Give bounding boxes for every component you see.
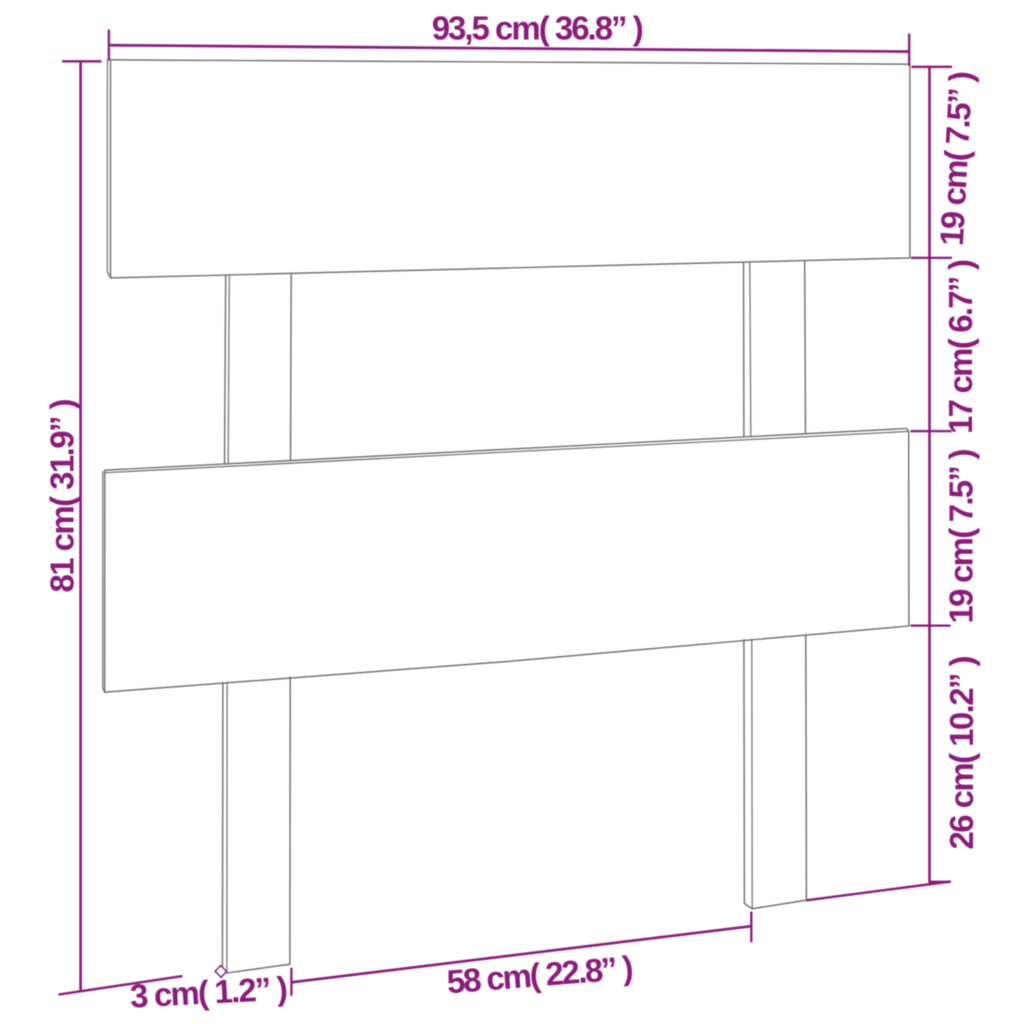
svg-text:26 cm( 10.2” ): 26 cm( 10.2” ) — [943, 656, 980, 850]
svg-text:19 cm( 7.5” ): 19 cm( 7.5” ) — [943, 449, 980, 624]
svg-text:17 cm( 6.7” ): 17 cm( 6.7” ) — [942, 259, 979, 434]
svg-text:81 cm( 31.9” ): 81 cm( 31.9” ) — [44, 399, 81, 593]
svg-text:93,5 cm( 36.8” ): 93,5 cm( 36.8” ) — [432, 10, 644, 47]
